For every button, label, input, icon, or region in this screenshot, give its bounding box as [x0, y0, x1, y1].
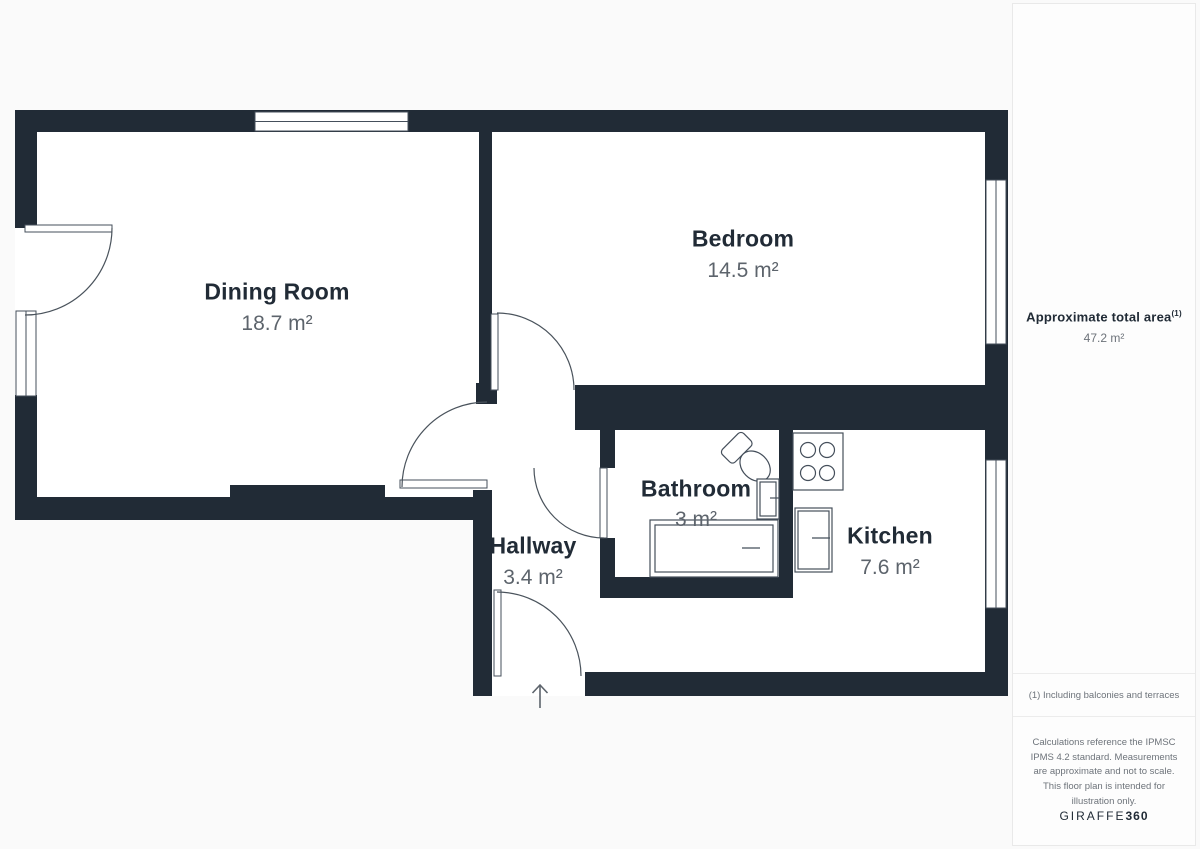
wall-bathroom-south — [600, 577, 793, 598]
door-leaf-dining-west — [25, 225, 112, 232]
room-label-kitchen: Kitchen — [847, 523, 933, 550]
wall-bedroom-south — [575, 385, 1008, 430]
bathroom-sink-fixture — [757, 479, 779, 519]
brand-suffix: 360 — [1125, 809, 1148, 823]
wall-hallway-west — [473, 490, 492, 696]
room-label-bedroom: Bedroom — [692, 226, 794, 253]
wall-dining-south — [15, 497, 492, 520]
room-area-dining: 18.7 m² — [241, 312, 312, 336]
door-leaf-bedroom — [491, 314, 498, 390]
door-leaf-bathroom — [600, 468, 607, 538]
info-sidebar: Approximate total area(1) 47.2 m² (1) In… — [1012, 3, 1196, 846]
wall-bathroom-east — [779, 430, 793, 598]
room-area-bathroom: 3 m² — [675, 508, 717, 532]
brand-name: GIRAFFE — [1059, 809, 1125, 823]
window-top — [255, 112, 408, 131]
room-label-bathroom: Bathroom — [641, 476, 751, 503]
wall-top — [15, 110, 1008, 132]
wall-bathroom-west-upper — [600, 430, 615, 468]
window-bedroom — [986, 180, 1006, 344]
window-kitchen — [986, 460, 1006, 608]
window-left — [16, 311, 36, 396]
wall-bottom — [585, 672, 1008, 696]
room-area-bedroom: 14.5 m² — [707, 259, 778, 283]
wall-divider-dining-bedroom — [479, 132, 492, 390]
room-label-hallway: Hallway — [489, 533, 576, 560]
wall-left-upper — [15, 110, 37, 228]
door-leaf-entrance — [494, 590, 501, 676]
footnote: (1) Including balconies and terraces — [1013, 673, 1195, 717]
kitchen-sink-fixture — [795, 508, 832, 572]
door-leaf-dining-hallway — [400, 480, 487, 488]
brand-logo: GIRAFFE360 — [1013, 809, 1195, 823]
room-area-kitchen: 7.6 m² — [860, 556, 920, 580]
wall-dining-pillar — [230, 485, 385, 499]
total-area-value: 47.2 m² — [1013, 331, 1195, 345]
disclaimer-text: Calculations reference the IPMSC IPMS 4.… — [1028, 736, 1180, 810]
total-area-block: Approximate total area(1) 47.2 m² — [1013, 309, 1195, 345]
total-area-label: Approximate total area(1) — [1013, 309, 1195, 324]
floorplan-page: Dining Room 18.7 m² Bedroom 14.5 m² Bath… — [0, 0, 1200, 849]
total-area-footnote-marker: (1) — [1171, 309, 1181, 318]
room-label-dining: Dining Room — [204, 279, 349, 306]
stove-fixture — [793, 433, 843, 490]
legal-section: Calculations reference the IPMSC IPMS 4.… — [1013, 718, 1195, 845]
total-area-label-text: Approximate total area — [1026, 309, 1171, 324]
room-area-hallway: 3.4 m² — [503, 566, 563, 590]
